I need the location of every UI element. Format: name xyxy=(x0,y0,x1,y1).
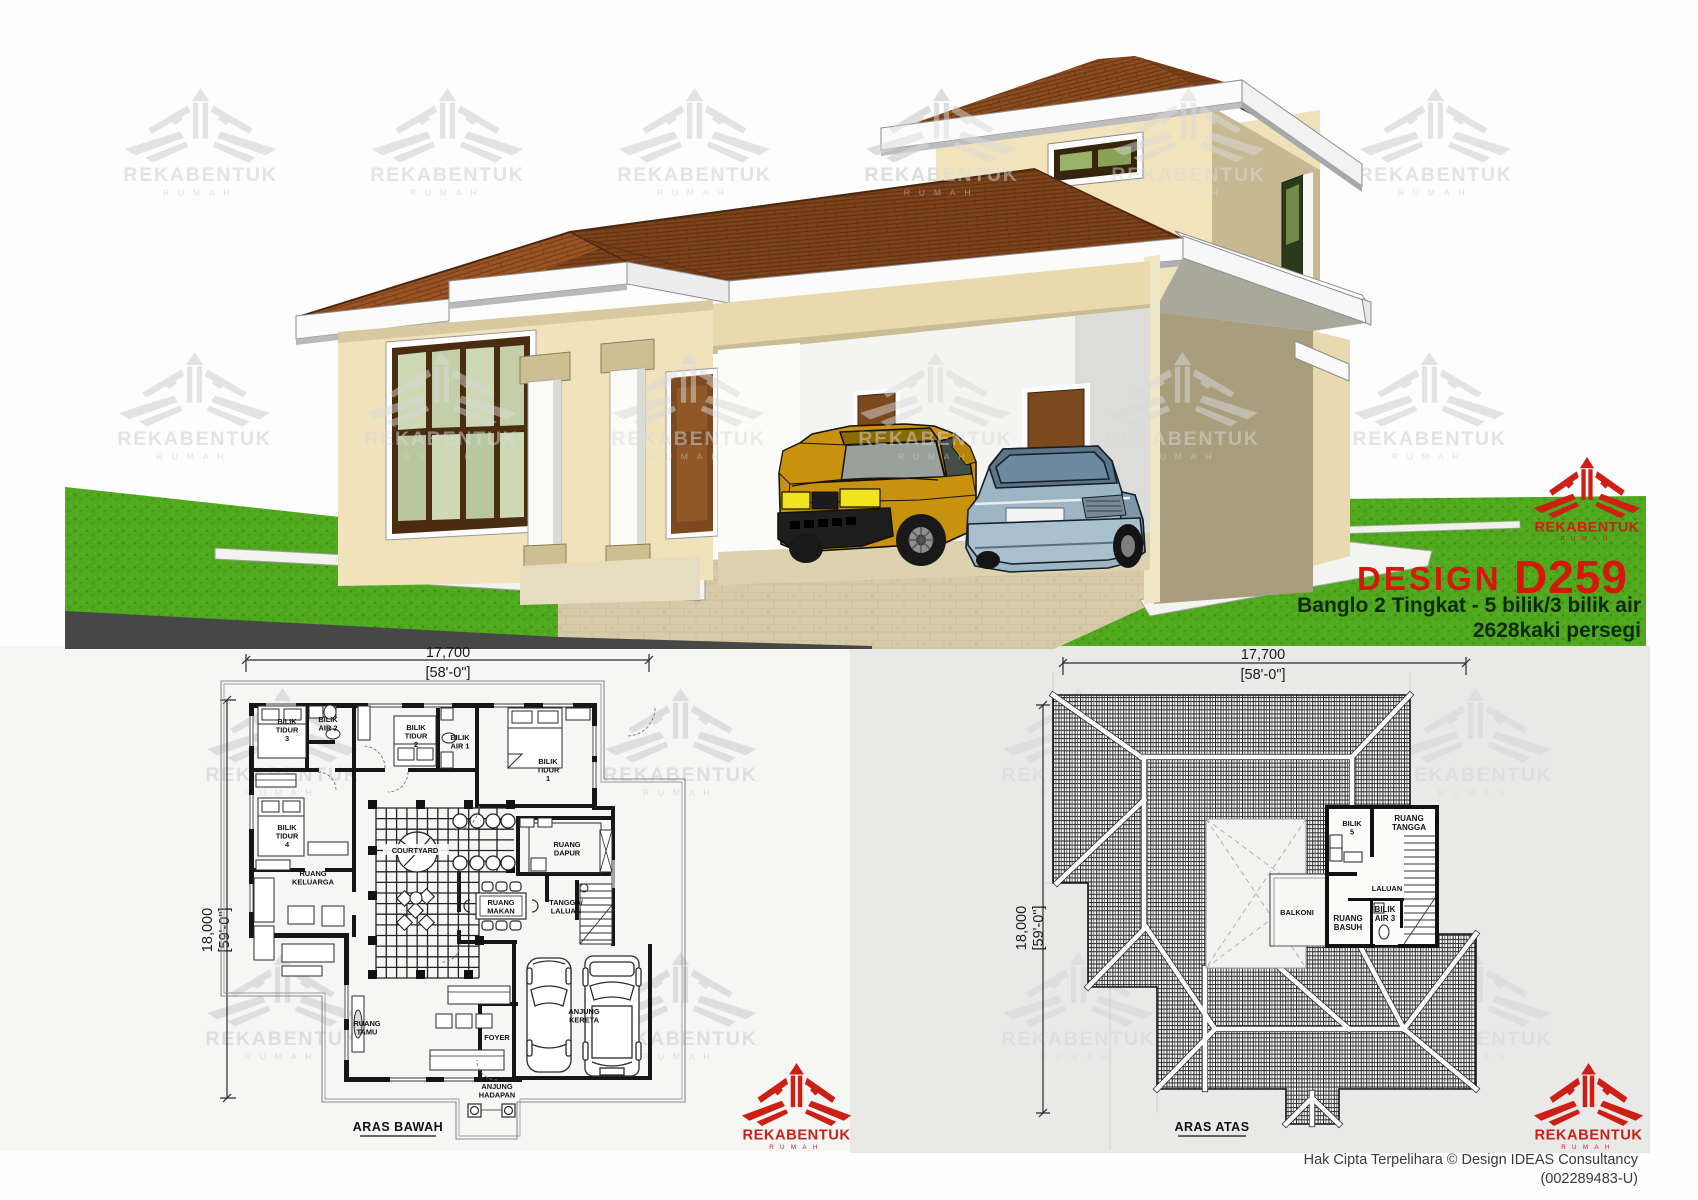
svg-text:BILIK: BILIK xyxy=(1375,905,1396,914)
svg-text:[59'-0"]: [59'-0"] xyxy=(1031,906,1047,951)
svg-text:COURTYARD: COURTYARD xyxy=(392,846,439,855)
svg-text:TANGGA: TANGGA xyxy=(1392,823,1426,832)
svg-text:ARAS ATAS: ARAS ATAS xyxy=(1174,1120,1249,1134)
svg-text:17,700: 17,700 xyxy=(426,645,470,661)
svg-text:[59'-0"]: [59'-0"] xyxy=(217,908,233,953)
svg-text:[58'-0"]: [58'-0"] xyxy=(426,665,471,681)
svg-text:3: 3 xyxy=(285,734,289,743)
svg-text:ARAS BAWAH: ARAS BAWAH xyxy=(353,1120,443,1134)
svg-text:DESIGN: DESIGN xyxy=(1357,560,1502,597)
svg-text:1: 1 xyxy=(546,774,550,783)
svg-text:(002289483-U): (002289483-U) xyxy=(1540,1171,1638,1187)
svg-text:HADAPAN: HADAPAN xyxy=(479,1091,515,1100)
svg-text:KERETA: KERETA xyxy=(569,1016,599,1025)
svg-text:FOYER: FOYER xyxy=(484,1033,510,1042)
svg-text:18,000: 18,000 xyxy=(1014,906,1030,950)
svg-text:LALUAN: LALUAN xyxy=(551,907,581,916)
svg-text:17,700: 17,700 xyxy=(1241,647,1285,663)
svg-text:[58'-0"]: [58'-0"] xyxy=(1241,667,1286,683)
svg-text:Banglo 2 Tingkat - 5 bilik/3 b: Banglo 2 Tingkat - 5 bilik/3 bilik air xyxy=(1297,594,1641,617)
svg-text:18,000: 18,000 xyxy=(200,908,216,952)
svg-text:MAKAN: MAKAN xyxy=(487,907,515,916)
svg-text:5: 5 xyxy=(1350,828,1354,837)
svg-text:DAPUR: DAPUR xyxy=(554,849,581,858)
svg-text:BASUH: BASUH xyxy=(1334,923,1363,932)
svg-text:RUANG: RUANG xyxy=(1333,914,1362,923)
svg-text:LALUAN: LALUAN xyxy=(1372,884,1402,893)
svg-text:AIR 2: AIR 2 xyxy=(319,724,338,733)
svg-text:RUANG: RUANG xyxy=(1394,814,1423,823)
svg-text:AIR 1: AIR 1 xyxy=(451,742,470,751)
svg-text:AIR 3: AIR 3 xyxy=(1375,914,1396,923)
svg-text:KELUARGA: KELUARGA xyxy=(292,878,335,887)
svg-text:Hak Cipta Terpelihara © Desig: Hak Cipta Terpelihara © Design IDEAS Con… xyxy=(1304,1152,1639,1168)
svg-text:BALKONI: BALKONI xyxy=(1280,908,1314,917)
svg-text:2: 2 xyxy=(414,740,418,749)
svg-text:2628kaki persegi: 2628kaki persegi xyxy=(1473,619,1641,642)
svg-text:TAMU: TAMU xyxy=(357,1028,378,1037)
